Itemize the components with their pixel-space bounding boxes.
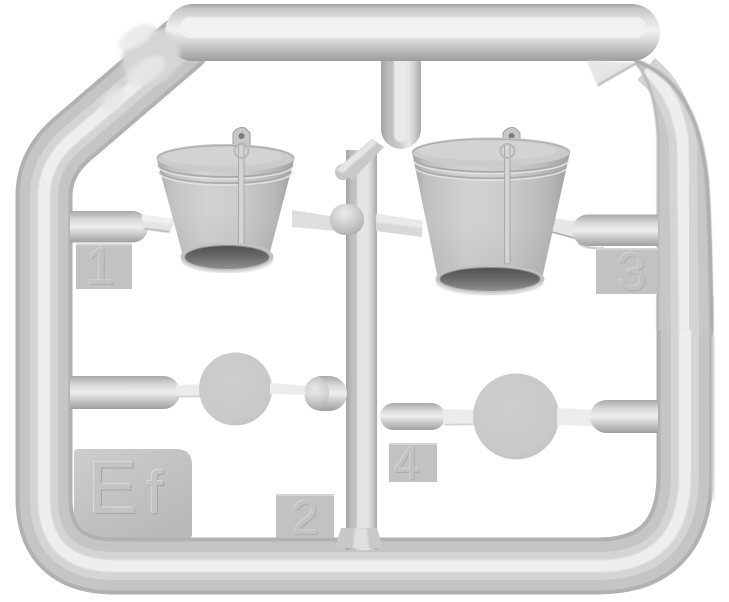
svg-text:3: 3 — [617, 242, 647, 302]
svg-text:4: 4 — [394, 437, 420, 489]
svg-text:f: f — [147, 459, 164, 526]
svg-text:1: 1 — [86, 238, 115, 296]
svg-text:2: 2 — [292, 492, 319, 545]
svg-text:E: E — [88, 446, 137, 529]
